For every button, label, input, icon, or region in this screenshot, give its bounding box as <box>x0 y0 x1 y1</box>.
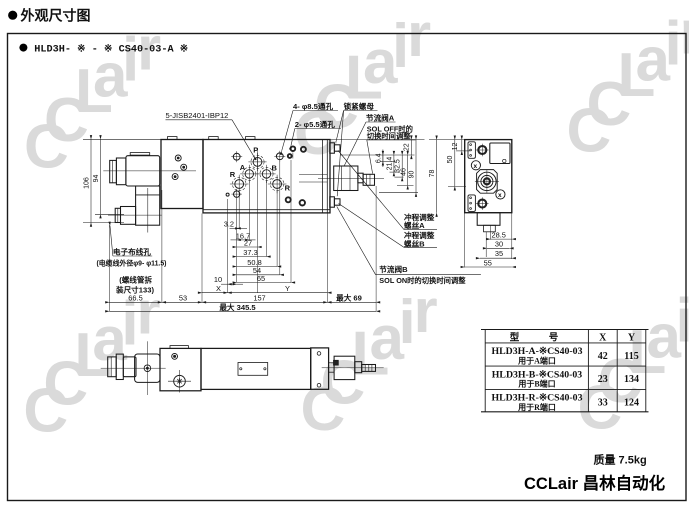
svg-text:46: 46 <box>400 168 407 176</box>
svg-text:90: 90 <box>409 171 416 179</box>
svg-text:x: x <box>498 192 502 199</box>
svg-text:用于R端口: 用于R端口 <box>517 402 556 412</box>
svg-text:用于B端口: 用于B端口 <box>517 379 555 389</box>
svg-text:21.4: 21.4 <box>387 157 394 171</box>
svg-text:115: 115 <box>624 351 638 362</box>
svg-text:Y: Y <box>628 332 636 343</box>
svg-text:X: X <box>216 284 221 293</box>
svg-text:R: R <box>285 183 291 192</box>
svg-text:螺丝A: 螺丝A <box>404 220 425 230</box>
svg-text:CCLair: CCLair <box>567 0 689 166</box>
svg-text:最大 345.5: 最大 345.5 <box>219 302 256 312</box>
svg-text:螺丝B: 螺丝B <box>404 238 425 248</box>
svg-text:27: 27 <box>244 239 252 248</box>
svg-text:12: 12 <box>452 143 459 151</box>
svg-text:A: A <box>240 163 246 172</box>
svg-text:x: x <box>474 163 478 170</box>
svg-text:33: 33 <box>598 397 608 408</box>
svg-text:用于A端口: 用于A端口 <box>517 355 556 365</box>
svg-text:X: X <box>599 332 607 343</box>
svg-text:号: 号 <box>549 333 559 344</box>
svg-text:最大 69: 最大 69 <box>336 292 362 302</box>
svg-text:5-JISB2401-IBP12: 5-JISB2401-IBP12 <box>166 111 229 120</box>
svg-text:6.4: 6.4 <box>376 153 383 163</box>
svg-text:78: 78 <box>429 170 436 178</box>
svg-text:SOL ON时的切换时间调整: SOL ON时的切换时间调整 <box>379 276 466 285</box>
svg-text:CCLair: CCLair <box>294 1 431 168</box>
svg-text:37.3: 37.3 <box>243 248 257 257</box>
svg-text:124: 124 <box>624 397 639 408</box>
svg-text:(电缆线外径φ9- φ11.5): (电缆线外径φ9- φ11.5) <box>97 258 167 267</box>
svg-text:157: 157 <box>253 294 265 303</box>
svg-text:锁紧螺母: 锁紧螺母 <box>344 101 375 111</box>
svg-text:外观尺寸图: 外观尺寸图 <box>21 8 91 24</box>
svg-text:HLD3H- ※ - ※ CS40-03-A ※: HLD3H- ※ - ※ CS40-03-A ※ <box>34 43 188 55</box>
svg-text:质量 7.5kg: 质量 7.5kg <box>594 453 647 467</box>
svg-text:65: 65 <box>257 274 265 283</box>
svg-text:23: 23 <box>598 374 608 385</box>
svg-text:电子布线孔: 电子布线孔 <box>113 246 151 256</box>
svg-text:CCLair: CCLair <box>24 15 161 182</box>
svg-text:3.2: 3.2 <box>224 220 234 229</box>
svg-text:10: 10 <box>214 275 222 284</box>
svg-text:(螺线管拆: (螺线管拆 <box>119 275 152 285</box>
svg-text:2- φ5.5通孔: 2- φ5.5通孔 <box>295 119 335 129</box>
svg-text:B: B <box>272 163 278 172</box>
svg-text:53: 53 <box>179 294 187 303</box>
svg-text:CCLair 昌林自动化: CCLair 昌林自动化 <box>524 473 666 493</box>
svg-text:节流阀A: 节流阀A <box>366 112 395 122</box>
svg-text:CCLair: CCLair <box>23 278 160 445</box>
svg-text:22: 22 <box>404 143 411 151</box>
svg-text:节流阀B: 节流阀B <box>379 264 408 274</box>
svg-text:66.5: 66.5 <box>128 294 142 303</box>
svg-text:4- φ8.5通孔: 4- φ8.5通孔 <box>293 101 333 111</box>
svg-text:R: R <box>230 170 236 179</box>
svg-text:94: 94 <box>93 175 100 183</box>
svg-text:35: 35 <box>495 249 503 258</box>
svg-text:28.5: 28.5 <box>492 230 506 239</box>
svg-text:55: 55 <box>484 258 492 267</box>
svg-text:Y: Y <box>285 284 290 293</box>
svg-text:134: 134 <box>624 374 639 385</box>
svg-text:42: 42 <box>598 351 608 362</box>
svg-text:30: 30 <box>495 239 503 248</box>
svg-text:型: 型 <box>510 332 520 344</box>
svg-text:106: 106 <box>83 177 90 189</box>
svg-text:50: 50 <box>447 156 454 164</box>
svg-text:切换时间调整: 切换时间调整 <box>367 132 411 141</box>
